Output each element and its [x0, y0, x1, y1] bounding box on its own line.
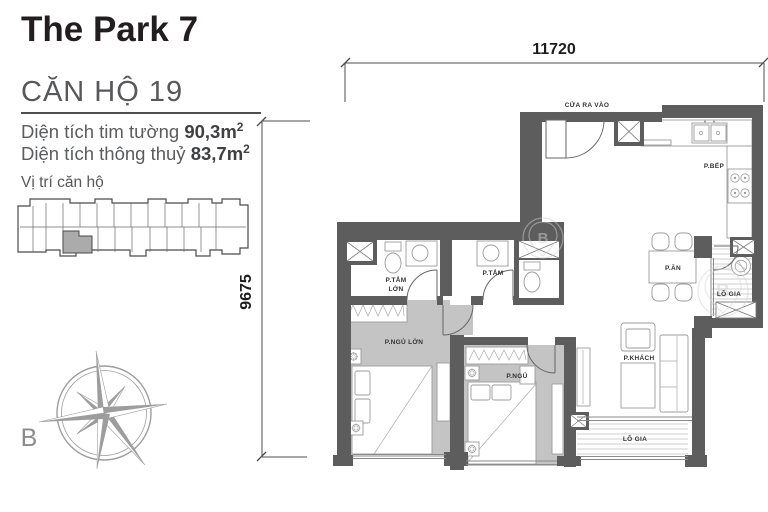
entrance-label: CỬA RA VÀO [565, 100, 609, 109]
master-bath-toilet [385, 242, 401, 273]
floorplan-page: The Park 7 CĂN HỘ 19 Diện tích tim tường… [0, 0, 768, 512]
building-site-map [18, 199, 248, 256]
armchair [621, 323, 655, 351]
master-bath-label-2: LỚN [388, 284, 403, 293]
kitchen-label: P.BẾP [704, 160, 725, 170]
bath-toilet [524, 262, 540, 270]
bedroom-nightstand-left [465, 366, 479, 380]
floor-plan-drawing: B 11720 9675 [0, 0, 768, 512]
entry-shaft [614, 117, 644, 146]
living-label: P.KHÁCH [624, 353, 655, 362]
bath-label: P.TẮM [483, 268, 504, 277]
compass-north-label: B [21, 424, 38, 452]
dimension-width [341, 58, 768, 102]
loggia-bottom-label: LÔ GIA [623, 434, 647, 443]
coffee-table [621, 363, 655, 408]
master-bath-label-1: P.TẮM [386, 275, 407, 284]
sofa [660, 335, 688, 412]
building-outline [18, 199, 248, 256]
kitchen-sink [692, 121, 727, 144]
master-bed [352, 366, 432, 454]
bath-sink [477, 241, 508, 266]
master-dressing-table [437, 363, 450, 421]
master-bath-sink [406, 241, 437, 266]
living-tv-cabinet [577, 348, 590, 406]
bedroom-label: P.NGỦ [506, 371, 527, 380]
bedroom-tv-cabinet [552, 384, 563, 454]
dining-label: P.ĂN [665, 263, 681, 272]
master-bath-door [407, 270, 437, 300]
bedroom-wardrobe [466, 347, 528, 364]
watermark-letter: B [538, 230, 549, 247]
entrance-door [546, 120, 604, 158]
master-nightstand-bottom [349, 421, 363, 435]
loggia-right-label: LÔ GIA [717, 289, 741, 298]
dimension-height [257, 117, 310, 461]
dimension-height-value: 9675 [238, 274, 255, 310]
stove [728, 169, 752, 203]
loggia-right-duct [730, 237, 757, 257]
dimension-width-value: 11720 [532, 41, 576, 58]
master-bath-duct [343, 238, 377, 265]
compass-rose: B [21, 351, 167, 469]
master-bedroom-label: P.NGỦ LỚN [385, 337, 423, 346]
